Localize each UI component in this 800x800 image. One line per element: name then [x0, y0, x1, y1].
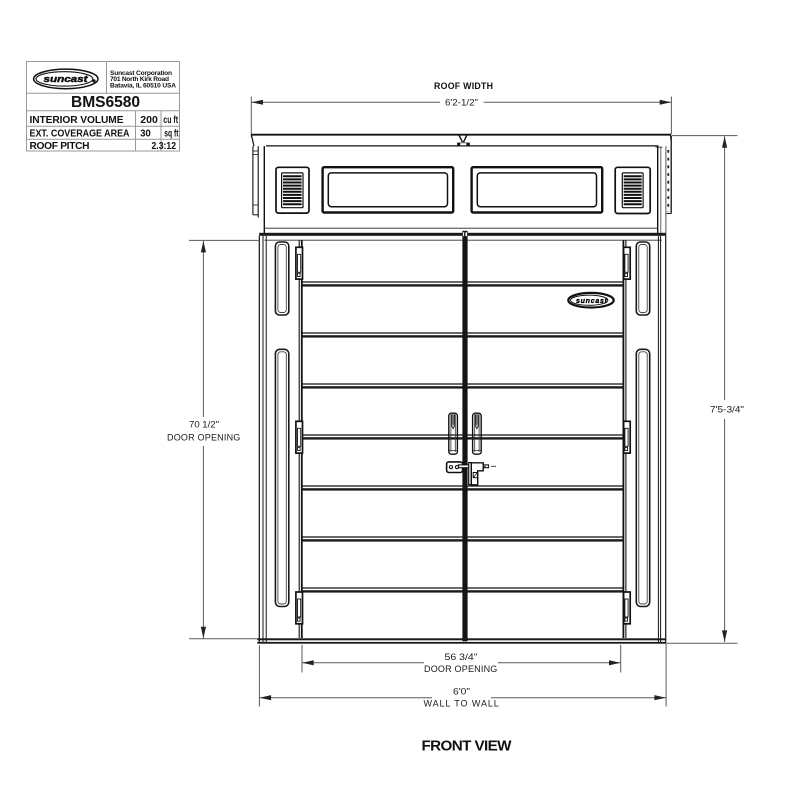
- svg-text:Batavia, IL 60510 USA: Batavia, IL 60510 USA: [110, 82, 176, 89]
- svg-text:200: 200: [140, 115, 158, 126]
- svg-text:DOOR OPENING: DOOR OPENING: [424, 664, 498, 674]
- svg-text:ROOF WIDTH: ROOF WIDTH: [434, 81, 493, 91]
- svg-text:suncast: suncast: [576, 298, 608, 305]
- svg-text:EXT. COVERAGE AREA: EXT. COVERAGE AREA: [30, 128, 131, 139]
- svg-text:56 3/4": 56 3/4": [445, 652, 478, 662]
- svg-text:6'2-1/2": 6'2-1/2": [445, 97, 478, 107]
- svg-text:cu ft: cu ft: [163, 115, 178, 126]
- svg-text:6'0": 6'0": [453, 686, 470, 696]
- svg-text:WALL TO WALL: WALL TO WALL: [424, 699, 500, 709]
- svg-text:sq ft: sq ft: [164, 128, 179, 139]
- svg-text:2.3:12: 2.3:12: [152, 141, 177, 152]
- svg-text:suncast: suncast: [44, 74, 89, 85]
- svg-text:INTERIOR VOLUME: INTERIOR VOLUME: [30, 115, 124, 126]
- svg-text:FRONT VIEW: FRONT VIEW: [422, 738, 513, 755]
- svg-text:7'5-3/4": 7'5-3/4": [710, 405, 744, 415]
- svg-text:DOOR OPENING: DOOR OPENING: [167, 432, 241, 442]
- svg-text:ROOF PITCH: ROOF PITCH: [30, 141, 90, 152]
- svg-text:BMS6580: BMS6580: [71, 94, 140, 111]
- svg-text:70 1/2": 70 1/2": [189, 420, 219, 430]
- svg-text:30: 30: [140, 128, 151, 139]
